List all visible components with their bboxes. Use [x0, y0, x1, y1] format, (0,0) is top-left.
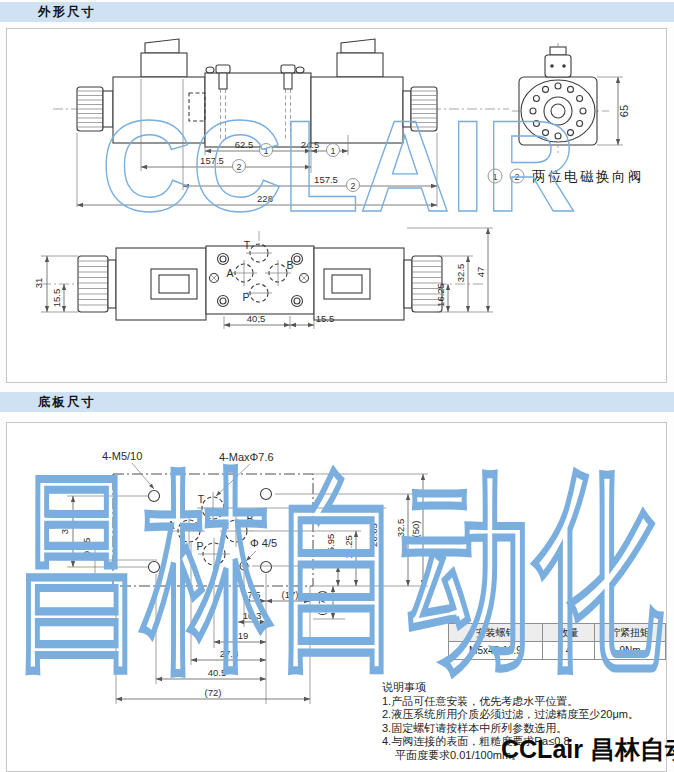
table-cell-screw: M5x45-10.9	[449, 642, 543, 660]
plate-port-t-label: T	[198, 493, 205, 505]
table-header-qty: 数量	[543, 624, 595, 642]
dim-50: (50)	[410, 521, 421, 538]
datasheet-page: 外形尺寸	[0, 0, 674, 772]
port-p-label: P	[242, 291, 249, 303]
plate-port-a-label: A	[167, 519, 174, 531]
label-phi-4-5: Φ 4/5	[250, 537, 277, 549]
dim-31-plate: 31	[59, 524, 70, 535]
table-cell-qty: 4	[543, 642, 595, 660]
note-item-1: 1.产品可任意安装，优先考虑水平位置。	[382, 695, 668, 709]
label-4-m5-10: 4-M5/10	[102, 450, 142, 462]
dim-27-8: 27.8	[220, 648, 239, 659]
dim-32-5: 32.5	[455, 264, 466, 283]
section-header-plate: 底板尺寸	[0, 392, 674, 412]
plate-panel: T A B P 4-M5/10 4-MaxΦ7.6 Φ 4/5 31 0.75	[6, 422, 667, 772]
dim-16-25-plate: 16.25	[343, 535, 354, 559]
brand-watermark: CCLair 昌林自动化	[501, 733, 674, 766]
dim-40-5-topview: 40.5	[247, 313, 266, 324]
dim-10-3: 10.3	[243, 610, 262, 621]
subplate-dimensions: 31 0.75 5.95 16.25 26.65 32.5 (50)	[59, 474, 428, 704]
plate-port-b-label: B	[246, 513, 253, 525]
dim-47: 47	[475, 267, 486, 278]
dim-19: 19	[238, 630, 249, 641]
dim-17: (17)	[282, 589, 299, 600]
dim-7-5: 7.5	[247, 589, 260, 600]
port-b-label: B	[286, 259, 293, 271]
table-row: M5x45-10.9 4 9Nm	[449, 642, 666, 660]
outline-panel: 62.5 1 24.5 1 157.5 2 157.5 2 228	[6, 28, 667, 383]
dim-15-5-left: 15.5	[51, 289, 62, 308]
dim-26-65: 26.65	[368, 523, 379, 547]
port-a-label: A	[226, 267, 233, 279]
dim-65: 65	[618, 105, 630, 117]
notes-title: 说明事项	[382, 681, 668, 695]
dim-31-topview: 31	[33, 278, 44, 289]
outline-watermark: CCLAIR	[101, 93, 576, 239]
dim-15-5-bottom: 15.5	[316, 313, 335, 324]
dim-8-75: (8.75)	[316, 591, 327, 616]
table-header-screw: 安装螺钉	[449, 624, 543, 642]
outline-drawing-svg: 62.5 1 24.5 1 157.5 2 157.5 2 228	[7, 29, 666, 382]
dim-16-25: 16.25	[435, 283, 446, 307]
plate-port-p-label: P	[196, 540, 203, 552]
dim-40-5-plate: 40.5	[208, 667, 227, 678]
port-t-label: T	[244, 239, 251, 251]
label-4-max-7-6: 4-MaxΦ7.6	[219, 451, 274, 463]
dim-0-75: 0.75	[81, 538, 92, 557]
dim-72: (72)	[205, 687, 222, 698]
table-header-torque: 拧紧扭矩	[595, 624, 666, 642]
mounting-screw-table: 安装螺钉 数量 拧紧扭矩 M5x45-10.9 4 9Nm	[448, 623, 666, 660]
dim-5-95: 5.95	[325, 534, 336, 553]
end-view-dimension: 65	[597, 77, 630, 145]
dim-32-5-plate: 32.5	[395, 519, 406, 538]
note-item-2: 2.液压系统所用介质必须过滤，过滤精度至少20μm。	[382, 708, 668, 722]
top-view-drawing: T A B P	[41, 231, 485, 323]
section-header-outline: 外形尺寸	[0, 2, 674, 22]
plate-section-title: 底板尺寸	[0, 395, 96, 409]
subplate-drawing: T A B P 4-M5/10 4-MaxΦ7.6 Φ 4/5	[102, 450, 313, 586]
table-cell-torque: 9Nm	[595, 642, 666, 660]
outline-section-title: 外形尺寸	[0, 5, 96, 19]
